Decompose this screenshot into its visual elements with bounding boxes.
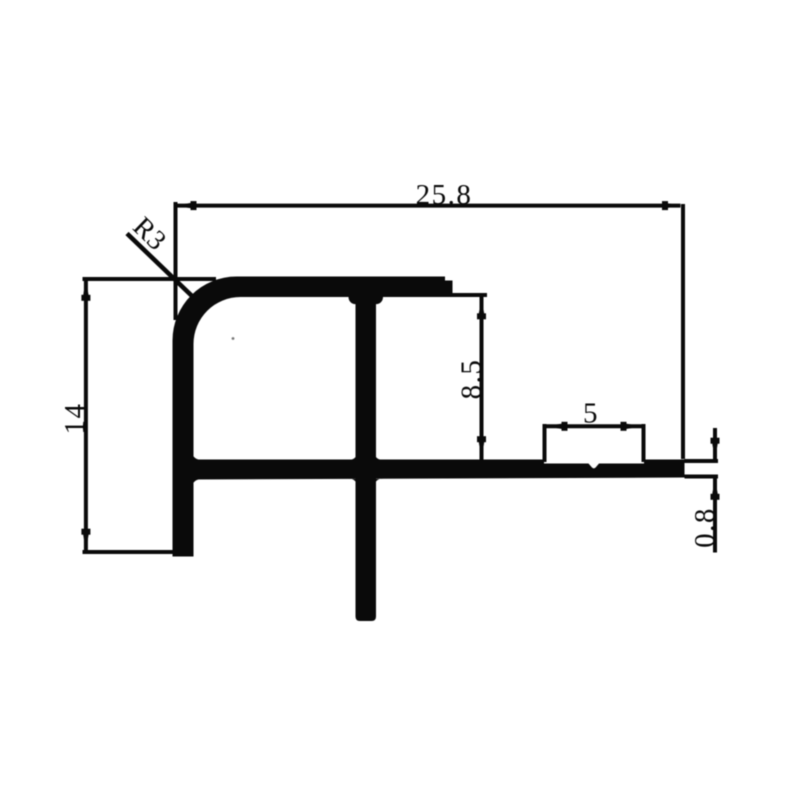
svg-text:5: 5 <box>583 398 599 430</box>
svg-text:25.8: 25.8 <box>416 179 473 211</box>
svg-text:8.5: 8.5 <box>456 359 488 400</box>
svg-text:0.8: 0.8 <box>689 507 721 548</box>
svg-text:14: 14 <box>59 403 91 435</box>
